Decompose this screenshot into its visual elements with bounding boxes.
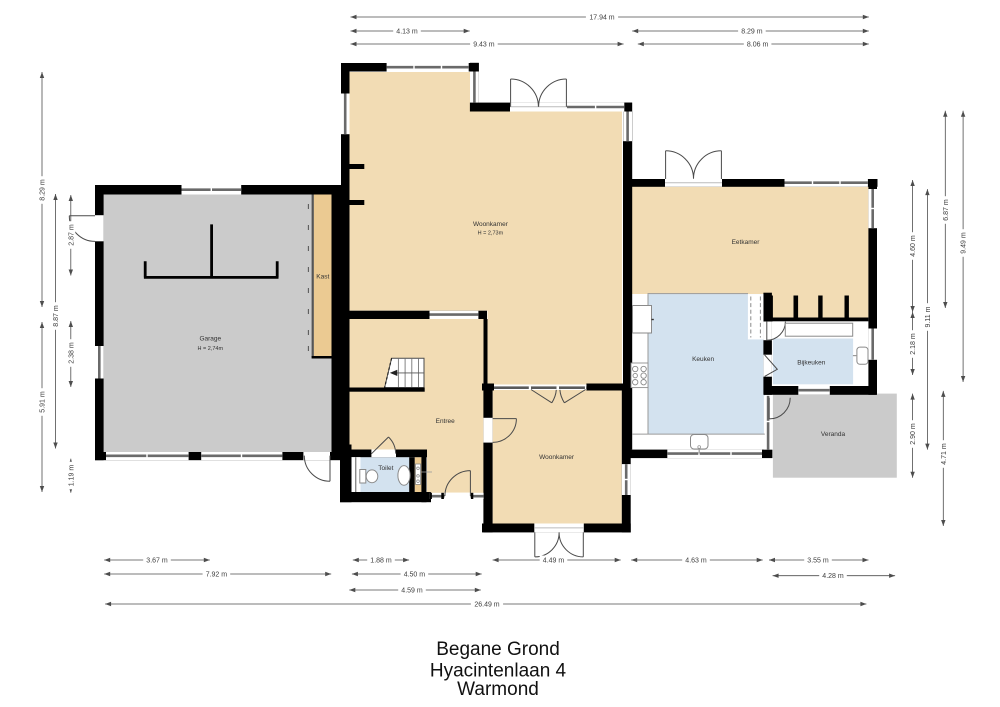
- svg-text:9.11 m: 9.11 m: [925, 306, 932, 327]
- svg-text:4.13 m: 4.13 m: [396, 29, 418, 36]
- svg-text:6.87 m: 6.87 m: [943, 199, 950, 221]
- svg-text:Bijkeuken: Bijkeuken: [797, 360, 826, 367]
- svg-text:Begane Grond: Begane Grond: [436, 639, 560, 660]
- svg-text:8.29 m: 8.29 m: [741, 29, 763, 36]
- svg-text:1.88 m: 1.88 m: [370, 558, 392, 565]
- svg-text:8.06 m: 8.06 m: [747, 42, 769, 49]
- svg-text:Garage: Garage: [199, 335, 221, 342]
- svg-text:Keuken: Keuken: [692, 356, 714, 363]
- svg-text:Warmond: Warmond: [457, 679, 539, 700]
- svg-text:4.59 m: 4.59 m: [401, 588, 423, 595]
- svg-text:3.67 m: 3.67 m: [146, 558, 168, 565]
- svg-text:Entree: Entree: [436, 418, 456, 425]
- svg-text:9.43 m: 9.43 m: [473, 42, 495, 49]
- svg-text:4.50 m: 4.50 m: [404, 572, 426, 579]
- svg-text:4.28 m: 4.28 m: [822, 573, 844, 580]
- svg-text:Veranda: Veranda: [821, 431, 846, 438]
- svg-text:Kast: Kast: [316, 274, 329, 281]
- svg-text:4.63 m: 4.63 m: [685, 558, 707, 565]
- svg-text:9.49 m: 9.49 m: [961, 232, 968, 254]
- svg-text:3.55 m: 3.55 m: [807, 558, 829, 565]
- svg-text:Woonkamer: Woonkamer: [539, 454, 575, 461]
- svg-text:2.90 m: 2.90 m: [910, 423, 917, 445]
- svg-text:4.71 m: 4.71 m: [941, 443, 948, 465]
- svg-text:26.49 m: 26.49 m: [474, 602, 499, 609]
- svg-text:2.18 m: 2.18 m: [910, 333, 917, 355]
- svg-text:Woonkamer: Woonkamer: [473, 221, 509, 228]
- svg-text:H = 2,74m: H = 2,74m: [198, 346, 224, 352]
- svg-text:Toilet: Toilet: [378, 465, 393, 472]
- svg-text:H = 2,73m: H = 2,73m: [478, 231, 504, 237]
- svg-text:4.60 m: 4.60 m: [910, 235, 917, 257]
- svg-text:8.87 m: 8.87 m: [53, 305, 60, 327]
- svg-text:8.29 m: 8.29 m: [40, 179, 47, 201]
- svg-text:Eetkamer: Eetkamer: [732, 239, 761, 246]
- svg-text:5.91 m: 5.91 m: [40, 391, 47, 413]
- svg-text:4.49 m: 4.49 m: [543, 558, 565, 565]
- svg-text:2.38 m: 2.38 m: [68, 342, 75, 364]
- svg-text:1.19 m: 1.19 m: [68, 465, 75, 487]
- svg-text:17.94 m: 17.94 m: [589, 15, 614, 22]
- svg-text:7.92 m: 7.92 m: [206, 572, 228, 579]
- svg-text:2.87 m: 2.87 m: [68, 224, 75, 246]
